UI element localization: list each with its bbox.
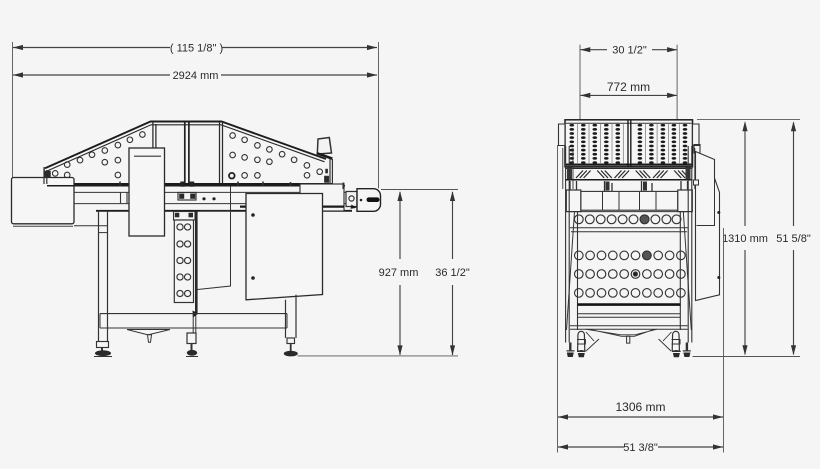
svg-text:1310 mm: 1310 mm bbox=[722, 233, 768, 245]
svg-text:36 1/2": 36 1/2" bbox=[435, 267, 470, 279]
svg-text:51 3/8": 51 3/8" bbox=[623, 442, 658, 454]
svg-text:51 5/8": 51 5/8" bbox=[776, 233, 811, 245]
svg-text:( 115 1/8" ): ( 115 1/8" ) bbox=[170, 43, 223, 55]
svg-text:1306 mm: 1306 mm bbox=[615, 400, 665, 414]
svg-text:927 mm: 927 mm bbox=[379, 267, 419, 279]
svg-text:2924 mm: 2924 mm bbox=[173, 70, 219, 82]
svg-text:30 1/2": 30 1/2" bbox=[612, 45, 647, 57]
svg-text:772 mm: 772 mm bbox=[607, 80, 650, 94]
